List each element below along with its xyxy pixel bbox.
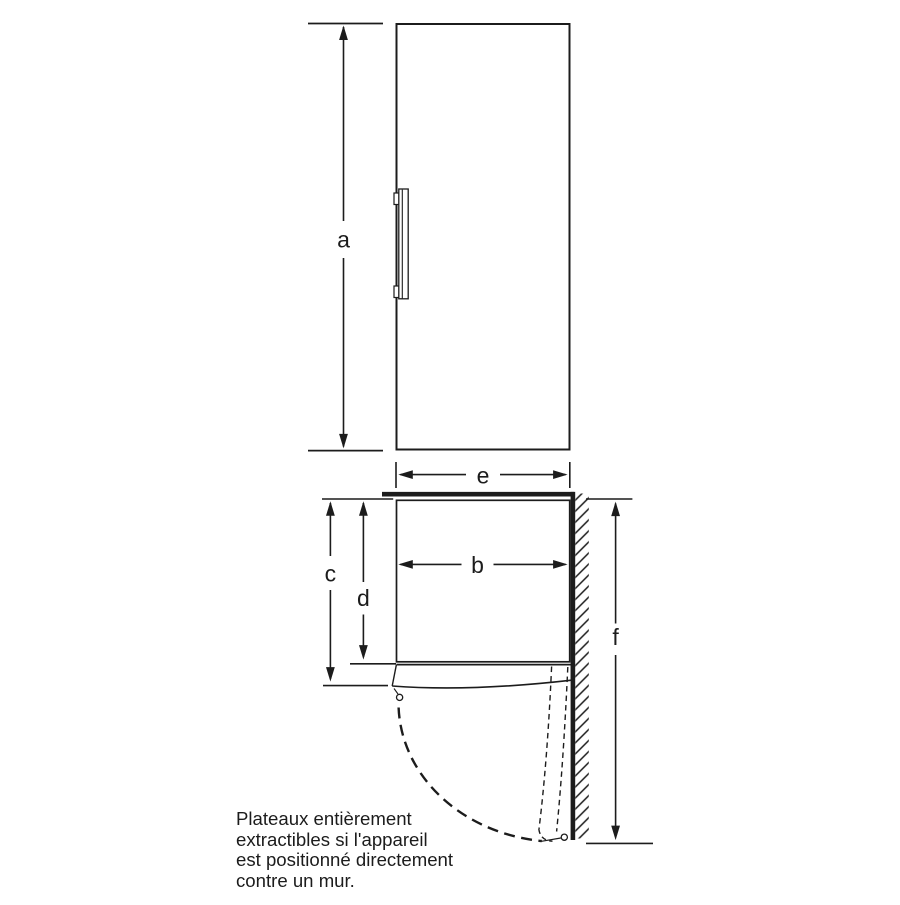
- dimension-f-label: f: [612, 624, 619, 650]
- front-view-outline: [397, 24, 570, 450]
- dimension-a-label: a: [337, 227, 350, 253]
- door-open-position: [539, 667, 568, 842]
- arrowhead-right-icon: [553, 470, 568, 479]
- handle-bar: [399, 189, 408, 299]
- dimension-d: d: [350, 501, 396, 664]
- door-front-edge: [392, 680, 571, 688]
- diagram-canvas: a e: [0, 0, 900, 900]
- door-left-edge: [392, 665, 396, 686]
- appliance-front-view: [394, 24, 570, 450]
- dimension-f: f: [586, 499, 653, 843]
- door-handle-marker-open: [561, 834, 567, 840]
- arrowhead-up-icon: [339, 26, 348, 41]
- dimension-d-label: d: [357, 585, 370, 611]
- door-open-inner-edge: [557, 667, 568, 832]
- door-open-outer-edge: [539, 667, 552, 830]
- wall-hatching: [575, 494, 589, 839]
- dimension-e: e: [396, 462, 570, 488]
- arrowhead-down-icon: [339, 434, 348, 449]
- dimension-c-label: c: [325, 561, 337, 587]
- door-closed-top-view: [392, 665, 571, 688]
- handle-marker-link-closed: [394, 689, 398, 695]
- arrowhead-down-icon: [611, 826, 620, 841]
- dimension-e-label: e: [477, 462, 490, 488]
- arrowhead-up-icon: [326, 501, 335, 516]
- dimension-b-label: b: [471, 552, 484, 578]
- top-view-body: [397, 500, 570, 662]
- arrowhead-up-icon: [611, 502, 620, 516]
- appliance-top-view: [382, 492, 589, 841]
- dimension-a: a: [308, 24, 383, 451]
- arrowhead-down-icon: [359, 645, 368, 660]
- arrowhead-up-icon: [359, 501, 368, 516]
- dimension-diagram: a e: [0, 0, 900, 900]
- arrowhead-left-icon: [398, 470, 413, 479]
- note-text: Plateaux entièrement extractibles si l'a…: [236, 809, 506, 891]
- door-handle-marker-closed: [397, 694, 403, 700]
- arrowhead-down-icon: [326, 667, 335, 682]
- dimension-c: c: [323, 501, 388, 685]
